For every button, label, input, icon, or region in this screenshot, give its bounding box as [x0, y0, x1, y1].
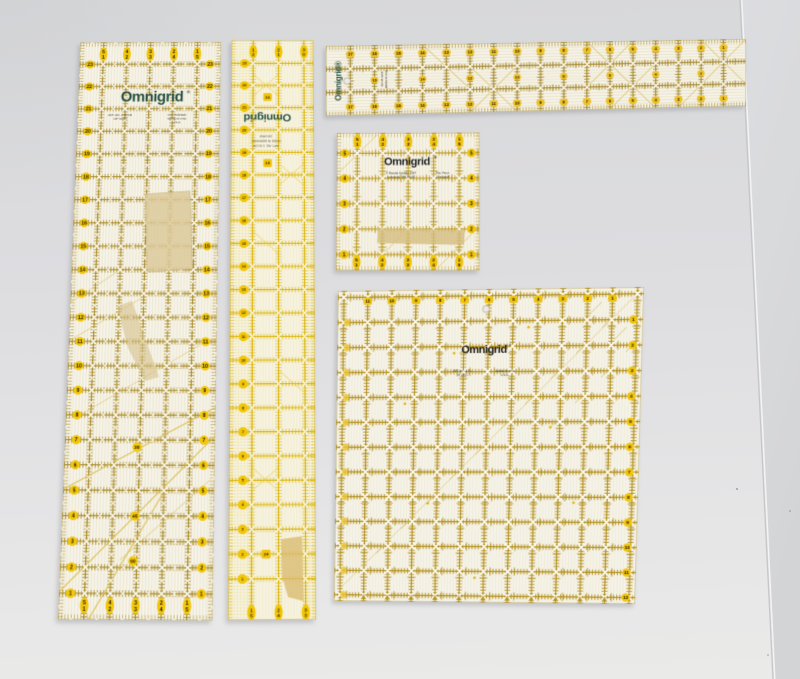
svg-text:13: 13: [444, 50, 449, 55]
svg-text:23: 23: [87, 62, 93, 68]
svg-text:3: 3: [343, 202, 346, 208]
svg-text:3: 3: [470, 201, 473, 207]
svg-text:5: 5: [196, 55, 199, 61]
svg-text:5: 5: [356, 137, 359, 143]
svg-text:10: 10: [265, 95, 270, 100]
svg-text:17: 17: [348, 105, 353, 110]
svg-text:11: 11: [624, 570, 630, 576]
svg-text:21: 21: [242, 106, 246, 110]
svg-text:21: 21: [207, 106, 213, 112]
svg-text:10: 10: [515, 49, 520, 54]
svg-text:2: 2: [432, 257, 435, 263]
svg-text:5: 5: [343, 151, 346, 157]
svg-text:5: 5: [355, 257, 358, 263]
svg-text:6: 6: [202, 463, 205, 470]
svg-text:MADE IN USA: MADE IN USA: [384, 70, 388, 88]
svg-text:3: 3: [241, 527, 243, 531]
svg-text:45: 45: [132, 513, 138, 519]
svg-text:3: 3: [406, 257, 409, 263]
svg-text:19: 19: [206, 151, 212, 157]
svg-text:1: 1: [356, 142, 359, 148]
svg-text:17: 17: [348, 52, 353, 57]
svg-text:17: 17: [242, 196, 246, 200]
svg-text:16: 16: [205, 220, 211, 226]
svg-text:15: 15: [396, 103, 401, 108]
svg-text:®: ®: [434, 155, 437, 159]
svg-text:30: 30: [134, 444, 140, 450]
svg-text:11: 11: [491, 49, 496, 54]
svg-text:4: 4: [381, 257, 384, 263]
svg-text:10: 10: [515, 101, 520, 106]
svg-text:9: 9: [203, 388, 206, 395]
svg-text:14: 14: [204, 267, 210, 273]
svg-text:Lynnwood, WA 98037: Lynnwood, WA 98037: [387, 175, 416, 179]
svg-text:1/8″ GRID: 1/8″ GRID: [113, 117, 126, 121]
svg-text:2: 2: [343, 227, 346, 233]
svg-text:11: 11: [365, 299, 370, 304]
svg-text:6: 6: [242, 454, 244, 458]
svg-text:5: 5: [458, 263, 461, 269]
svg-text:8: 8: [203, 413, 206, 420]
svg-text:16: 16: [372, 51, 377, 56]
svg-text:5: 5: [470, 151, 473, 157]
svg-text:2: 2: [470, 227, 473, 233]
svg-text:7: 7: [242, 430, 244, 434]
svg-text:2: 2: [381, 142, 384, 148]
svg-text:13: 13: [242, 288, 246, 292]
svg-text:Omnigrid: Omnigrid: [384, 156, 430, 168]
svg-text:10: 10: [389, 298, 395, 303]
svg-text:16: 16: [242, 219, 246, 223]
svg-text:1/8 GRID: 1/8 GRID: [260, 134, 273, 138]
svg-text:4: 4: [343, 176, 346, 182]
svg-text:18: 18: [83, 174, 89, 180]
svg-text:12: 12: [468, 102, 473, 107]
svg-text:2: 2: [241, 552, 243, 556]
svg-text:4: 4: [432, 263, 435, 269]
svg-text:2: 2: [200, 565, 203, 572]
svg-text:5: 5: [458, 142, 461, 148]
svg-text:13: 13: [79, 291, 85, 297]
svg-text:10: 10: [76, 363, 82, 370]
svg-text:4: 4: [432, 142, 435, 148]
svg-text:12: 12: [623, 595, 629, 601]
svg-text:1: 1: [458, 136, 461, 142]
svg-text:Omnigrid: Omnigrid: [461, 344, 507, 357]
svg-text:1: 1: [241, 577, 243, 581]
svg-text:1: 1: [458, 257, 461, 263]
svg-text:Omnigrid®: Omnigrid®: [333, 60, 343, 101]
svg-text:11: 11: [241, 335, 245, 339]
svg-text:14: 14: [420, 77, 425, 82]
svg-text:14: 14: [420, 50, 425, 55]
svg-text:16: 16: [372, 78, 377, 83]
svg-text:4: 4: [242, 503, 244, 507]
svg-text:23: 23: [243, 62, 247, 66]
svg-text:14: 14: [80, 267, 86, 273]
svg-text:Omnigrid: Omnigrid: [244, 111, 292, 123]
svg-text:20: 20: [206, 129, 212, 135]
svg-text:4: 4: [172, 55, 175, 61]
svg-text:5: 5: [202, 488, 205, 495]
svg-text:MADE IN GERMANY: MADE IN GERMANY: [251, 139, 280, 143]
svg-text:60: 60: [130, 558, 136, 564]
svg-text:20: 20: [85, 129, 91, 135]
svg-text:22: 22: [207, 84, 213, 90]
svg-text:15: 15: [80, 244, 86, 250]
svg-text:5: 5: [185, 607, 189, 614]
svg-text:11: 11: [77, 339, 83, 346]
svg-text:3: 3: [407, 136, 410, 142]
svg-text:3: 3: [201, 539, 204, 546]
svg-text:17: 17: [82, 197, 88, 203]
svg-text:1: 1: [200, 591, 204, 598]
svg-text:23: 23: [207, 62, 213, 68]
svg-text:22: 22: [242, 84, 246, 88]
svg-text:2: 2: [432, 136, 435, 142]
svg-text:15: 15: [242, 242, 246, 246]
svg-text:1: 1: [470, 252, 473, 258]
svg-text:Omnigrid®: Omnigrid®: [436, 175, 451, 179]
svg-text:U.S.A.: U.S.A.: [501, 373, 510, 377]
svg-text:20: 20: [242, 128, 246, 132]
svg-text:11: 11: [203, 339, 209, 346]
svg-text:10: 10: [624, 545, 630, 551]
svg-text:10: 10: [515, 75, 520, 80]
svg-text:1/8 GRID: 1/8 GRID: [456, 373, 468, 377]
svg-text:12: 12: [241, 311, 245, 315]
svg-text:2: 2: [381, 263, 384, 269]
svg-text:12: 12: [203, 315, 209, 321]
svg-text:4: 4: [470, 176, 473, 182]
svg-text:13: 13: [444, 102, 449, 107]
svg-text:12: 12: [78, 315, 84, 321]
svg-text:7: 7: [202, 438, 205, 445]
svg-text:16: 16: [81, 220, 87, 226]
svg-text:10: 10: [202, 363, 208, 370]
svg-text:5: 5: [242, 478, 244, 482]
svg-text:1: 1: [185, 601, 189, 608]
svg-text:19: 19: [242, 151, 246, 155]
svg-text:14: 14: [242, 265, 246, 269]
svg-text:4: 4: [381, 137, 384, 143]
svg-text:1: 1: [355, 263, 358, 269]
svg-text:16: 16: [372, 104, 377, 109]
svg-text:10: 10: [241, 358, 245, 362]
svg-text:12: 12: [468, 76, 473, 81]
svg-text:8: 8: [242, 406, 244, 410]
svg-text:1: 1: [196, 49, 199, 55]
svg-text:1: 1: [343, 252, 346, 258]
svg-text:4: 4: [201, 513, 204, 520]
svg-text:11: 11: [491, 101, 496, 106]
svg-text:15: 15: [396, 51, 401, 56]
svg-text:®: ®: [187, 90, 190, 95]
svg-text:U.S.A.: U.S.A.: [173, 120, 182, 124]
svg-text:3: 3: [406, 263, 409, 269]
svg-text:Omnigrid: Omnigrid: [120, 90, 183, 106]
svg-text:13: 13: [203, 291, 209, 297]
svg-text:18: 18: [205, 174, 211, 180]
svg-text:21: 21: [86, 106, 92, 112]
svg-text:22: 22: [86, 84, 92, 90]
svg-text:9: 9: [242, 382, 244, 386]
svg-text:14: 14: [420, 103, 425, 108]
svg-text:19: 19: [84, 152, 90, 158]
svg-text:15: 15: [204, 244, 210, 250]
svg-text:3: 3: [407, 142, 410, 148]
svg-text:17: 17: [205, 197, 211, 203]
svg-text:18: 18: [242, 173, 246, 177]
svg-text:ART.-NO. 1/15 CM: ART.-NO. 1/15 CM: [253, 144, 279, 148]
svg-text:12: 12: [468, 50, 473, 55]
